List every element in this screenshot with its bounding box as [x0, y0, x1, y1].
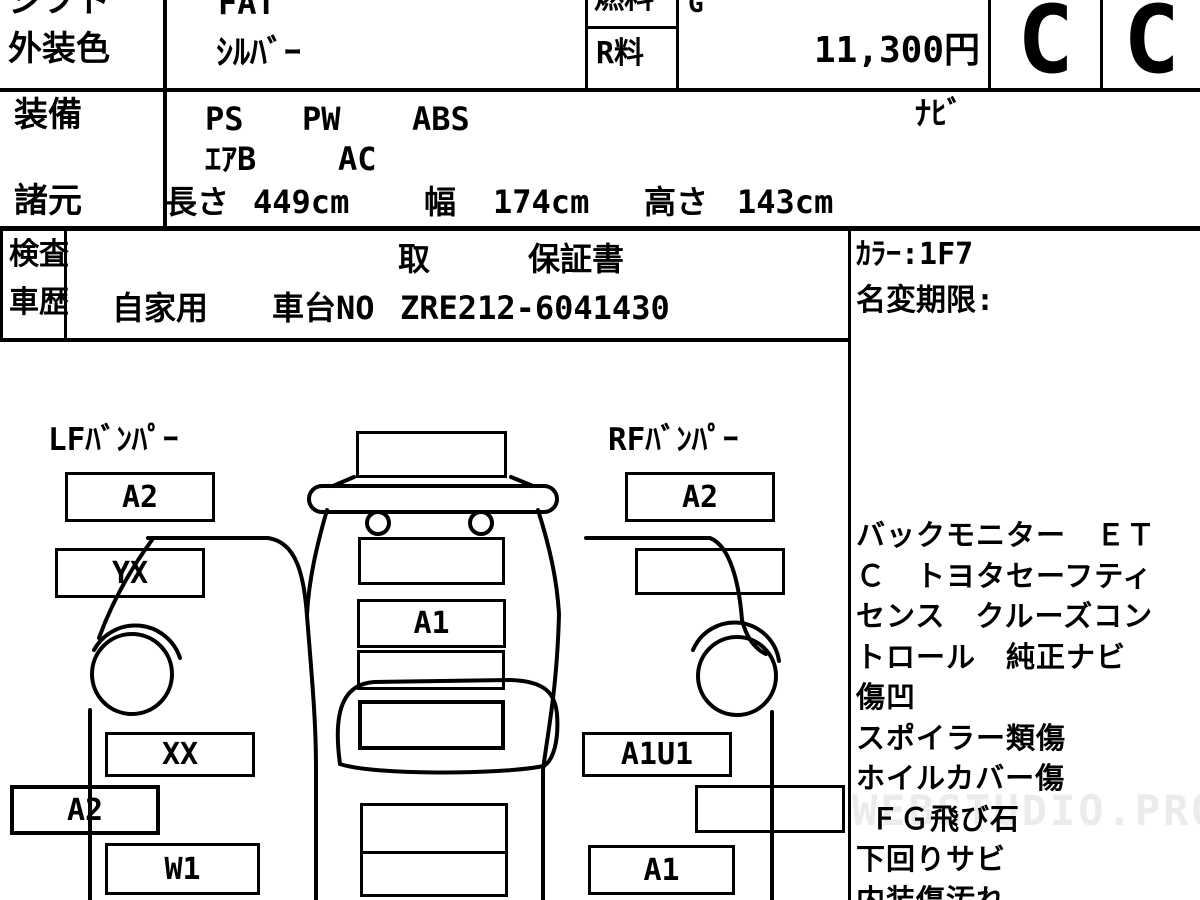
spec-height-label: 高さ — [644, 186, 708, 220]
usage: 自家用 — [112, 292, 208, 326]
spec-length-label: 長さ — [165, 186, 229, 220]
damage-code: A2 — [682, 480, 718, 515]
spec-width-label: 幅 — [424, 186, 456, 220]
shift-value: FAT — [218, 0, 276, 21]
equipment-airbag: ｴｱB — [205, 143, 256, 177]
color-code: ｶﾗｰ:1F7 — [856, 239, 973, 271]
chassis-no: ZRE212-6041430 — [400, 292, 670, 326]
damage-code: YX — [112, 556, 148, 591]
history-label: 車歴 — [9, 287, 69, 319]
remark-line: ホイルカバー傷 — [856, 755, 1200, 796]
damage-box-rf-bumper: A2 — [625, 472, 775, 522]
spec-height-value: 143cm — [737, 186, 833, 220]
rf-bumper-label: RFﾊﾞﾝﾊﾟｰ — [608, 424, 738, 457]
divider — [363, 851, 505, 854]
grade-exterior: C — [991, 0, 1100, 90]
spec-width-value: 174cm — [493, 186, 589, 220]
equipment-abs: ABS — [412, 103, 470, 137]
docs-line: 取 — [398, 243, 430, 277]
damage-box-right-side — [695, 785, 845, 833]
remark-line: センス クルーズコン — [856, 593, 1200, 634]
remark-line: 下回りサビ — [856, 836, 1200, 877]
damage-box-front-center-top — [356, 431, 507, 478]
grade-interior: C — [1103, 0, 1200, 90]
warranty-book: 保証書 — [528, 243, 624, 277]
damage-box-roof — [360, 803, 508, 897]
remark-line: スポイラー類傷 — [856, 715, 1200, 756]
damage-box-front-grille — [358, 537, 505, 585]
divider — [0, 338, 848, 342]
damage-box-lf-bumper: A2 — [65, 472, 215, 522]
damage-code: A2 — [67, 793, 103, 828]
equipment-ps: PS — [205, 103, 244, 137]
damage-box-left-front-door: XX — [105, 732, 255, 777]
recycle-fee-label: R料 — [596, 38, 644, 70]
damage-box-windshield — [358, 700, 505, 750]
recycle-fee-value: 11,300円 — [690, 32, 980, 70]
damage-box-right-front-fender — [635, 548, 785, 595]
spec-length-value: 449cm — [253, 186, 349, 220]
remark-line: Ｃ トヨタセーフティ — [856, 553, 1200, 594]
damage-code: A1 — [643, 853, 679, 888]
divider — [585, 0, 588, 90]
divider — [848, 230, 851, 900]
divider — [0, 230, 3, 338]
equipment-ac: AC — [338, 143, 377, 177]
remarks-list: バックモニター ＥＴ Ｃ トヨタセーフティ センス クルーズコン トロール 純正… — [856, 512, 1200, 900]
fuel-label: 燃料 — [594, 0, 654, 15]
damage-box-hood: A1 — [357, 599, 506, 648]
exterior-color-label: 外装色 — [8, 32, 110, 68]
remark-line: 傷凹 — [856, 674, 1200, 715]
name-change-limit: 名変期限: — [856, 285, 994, 317]
damage-box-left-rear-door: W1 — [105, 843, 260, 895]
equipment-label: 装備 — [14, 98, 82, 134]
damage-code: XX — [162, 737, 198, 772]
remark-line: ＦＧ飛び石 — [856, 796, 1200, 837]
fuel-value: G — [688, 0, 704, 18]
damage-code: A1 — [413, 606, 449, 641]
divider — [585, 26, 677, 29]
lf-bumper-label: LFﾊﾞﾝﾊﾟｰ — [48, 424, 178, 457]
damage-box-cowl — [357, 650, 505, 690]
equipment-pw: PW — [302, 103, 341, 137]
inspect-label: 検査 — [9, 239, 69, 271]
exterior-color-value: ｼﾙﾊﾞｰ — [216, 36, 301, 72]
damage-box-left-front-fender: YX — [55, 548, 205, 598]
damage-code: A1U1 — [621, 737, 693, 772]
damage-code: W1 — [164, 852, 200, 887]
remark-line: バックモニター ＥＴ — [856, 512, 1200, 553]
auction-sheet: シフト FAT 燃料 G 外装色 ｼﾙﾊﾞｰ R料 11,300円 C C 装備… — [0, 0, 1200, 900]
remark-line: トロール 純正ナビ — [856, 634, 1200, 675]
specs-label: 諸元 — [14, 184, 82, 220]
shift-label: シフト — [8, 0, 110, 20]
remark-line: 内装傷汚れ — [856, 877, 1200, 900]
damage-code: A2 — [122, 480, 158, 515]
damage-box-right-rear-door: A1 — [588, 845, 735, 895]
damage-box-left-side: A2 — [10, 785, 160, 835]
damage-box-right-front-door: A1U1 — [582, 732, 732, 777]
divider — [0, 226, 1200, 231]
chassis-label: 車台NO — [272, 292, 375, 326]
divider — [676, 0, 679, 90]
equipment-nav: ﾅﾋﾞ — [915, 97, 963, 131]
